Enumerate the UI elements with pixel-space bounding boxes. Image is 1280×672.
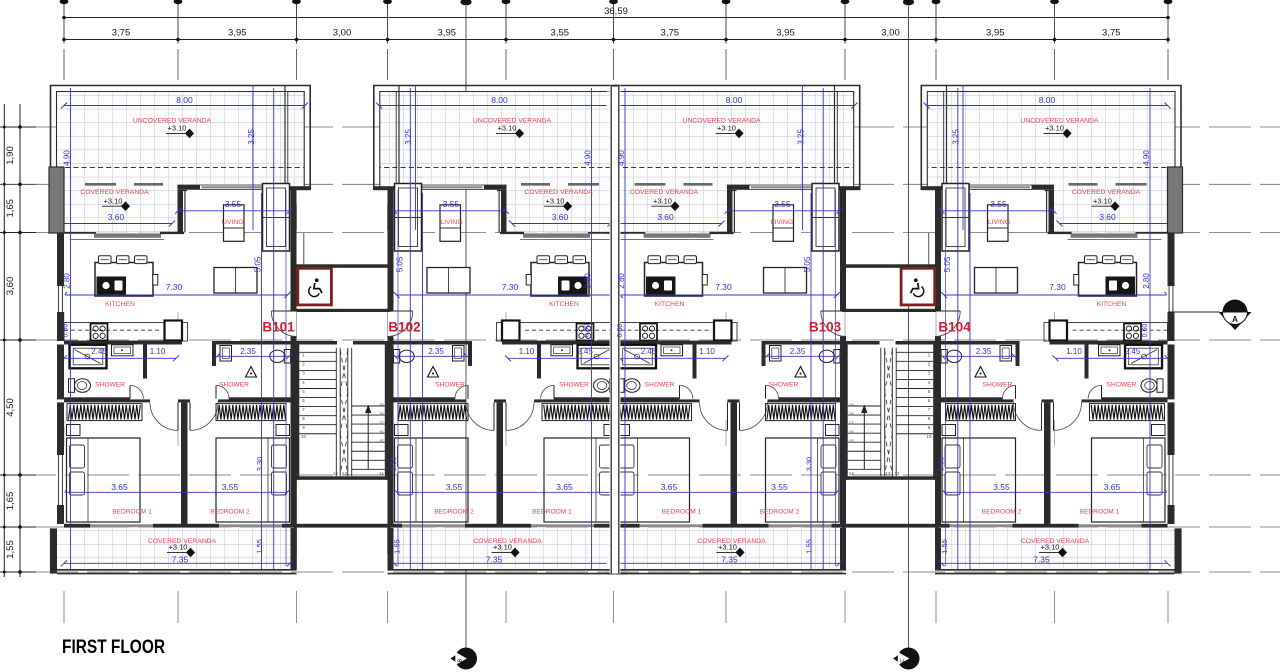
- svg-text:KITCHEN: KITCHEN: [655, 301, 685, 308]
- svg-text:SHOWER: SHOWER: [435, 382, 465, 389]
- svg-text:3.55: 3.55: [774, 199, 791, 209]
- svg-text:SHOWER: SHOWER: [983, 382, 1013, 389]
- svg-text:3.55: 3.55: [443, 199, 460, 209]
- svg-text:3.55: 3.55: [446, 482, 463, 492]
- svg-text:BEDROOM 2: BEDROOM 2: [434, 509, 474, 516]
- svg-text:19: 19: [379, 403, 384, 408]
- svg-text:SHOWER: SHOWER: [645, 382, 675, 389]
- svg-text:5.05: 5.05: [396, 256, 405, 272]
- svg-text:B101: B101: [262, 320, 295, 335]
- svg-text:BEDROOM 2: BEDROOM 2: [982, 509, 1022, 516]
- svg-text:BEDROOM 2: BEDROOM 2: [760, 509, 800, 516]
- svg-text:+3.10: +3.10: [168, 124, 187, 133]
- svg-text:17: 17: [379, 421, 384, 426]
- svg-text:5.05: 5.05: [943, 256, 952, 272]
- svg-text:1.55: 1.55: [804, 539, 813, 554]
- svg-text:1.10: 1.10: [699, 347, 715, 356]
- svg-text:A: A: [1232, 315, 1238, 324]
- svg-text:+3.10: +3.10: [1045, 124, 1064, 133]
- svg-text:COVERED VERANDA: COVERED VERANDA: [80, 189, 149, 196]
- svg-text:BEDROOM 1: BEDROOM 1: [1080, 509, 1120, 516]
- svg-text:3,75: 3,75: [112, 28, 131, 39]
- svg-text:0.60: 0.60: [583, 324, 590, 338]
- svg-text:SHOWER: SHOWER: [559, 382, 589, 389]
- svg-text:3,95: 3,95: [986, 28, 1005, 39]
- svg-text:12: 12: [895, 471, 900, 476]
- svg-text:3.60: 3.60: [552, 212, 569, 222]
- svg-text:2.35: 2.35: [240, 347, 256, 356]
- svg-text:+3.10: +3.10: [498, 124, 517, 133]
- svg-text:1.10: 1.10: [150, 347, 166, 356]
- svg-text:3.55: 3.55: [771, 482, 788, 492]
- svg-text:+3.10: +3.10: [104, 196, 123, 205]
- svg-text:1.55: 1.55: [940, 539, 949, 554]
- svg-text:3,00: 3,00: [333, 28, 352, 39]
- svg-text:0.60: 0.60: [617, 324, 624, 338]
- svg-text:BEDROOM 2: BEDROOM 2: [210, 509, 250, 516]
- svg-text:3.60: 3.60: [108, 212, 125, 222]
- svg-text:KITCHEN: KITCHEN: [1097, 301, 1127, 308]
- svg-text:3,95: 3,95: [776, 28, 795, 39]
- svg-text:1.55: 1.55: [255, 539, 264, 554]
- svg-text:11: 11: [295, 471, 300, 476]
- svg-text:3,00: 3,00: [881, 28, 900, 39]
- svg-text:2.45: 2.45: [91, 347, 107, 356]
- svg-text:2.80: 2.80: [1142, 273, 1151, 289]
- svg-text:36,59: 36,59: [604, 6, 628, 17]
- svg-text:+3.10: +3.10: [718, 543, 737, 552]
- svg-text:B103: B103: [809, 320, 842, 335]
- svg-text:2.35: 2.35: [976, 347, 992, 356]
- svg-text:4.90: 4.90: [1142, 150, 1151, 166]
- svg-text:2.45: 2.45: [1125, 347, 1141, 356]
- svg-text:SHOWER: SHOWER: [219, 382, 249, 389]
- svg-text:16: 16: [379, 430, 384, 435]
- svg-text:3.25: 3.25: [952, 129, 961, 145]
- svg-text:5.05: 5.05: [803, 256, 812, 272]
- svg-text:3.25: 3.25: [404, 129, 413, 145]
- svg-text:+3.10: +3.10: [493, 543, 512, 552]
- svg-text:B102: B102: [388, 320, 420, 335]
- svg-text:3,75: 3,75: [1102, 28, 1121, 39]
- svg-text:COVERED VERANDA: COVERED VERANDA: [630, 189, 699, 196]
- svg-text:4.90: 4.90: [584, 150, 593, 166]
- svg-text:3,95: 3,95: [438, 28, 457, 39]
- svg-text:2.80: 2.80: [584, 273, 593, 289]
- svg-text:3.65: 3.65: [111, 482, 128, 492]
- svg-text:3.55: 3.55: [225, 199, 242, 209]
- svg-text:3.25: 3.25: [247, 129, 256, 145]
- svg-text:2.35: 2.35: [428, 347, 444, 356]
- svg-text:13: 13: [886, 471, 891, 476]
- svg-text:1.10: 1.10: [519, 347, 535, 356]
- svg-text:2.80: 2.80: [617, 273, 626, 289]
- svg-text:3,95: 3,95: [228, 28, 247, 39]
- svg-text:7.30: 7.30: [502, 282, 519, 292]
- svg-text:3.30: 3.30: [804, 457, 813, 472]
- svg-text:1.10: 1.10: [1066, 347, 1082, 356]
- svg-text:7.30: 7.30: [715, 282, 732, 292]
- svg-text:10: 10: [301, 434, 306, 439]
- svg-text:SHOWER: SHOWER: [1107, 382, 1137, 389]
- svg-text:LIVING: LIVING: [221, 219, 243, 226]
- svg-text:10: 10: [927, 434, 932, 439]
- svg-text:+3.10: +3.10: [546, 196, 565, 205]
- svg-text:+3.10: +3.10: [1041, 543, 1060, 552]
- svg-text:+3.10: +3.10: [653, 196, 672, 205]
- svg-text:3.60: 3.60: [1099, 212, 1116, 222]
- svg-text:1,55: 1,55: [5, 540, 16, 559]
- svg-text:13: 13: [342, 471, 347, 476]
- svg-text:+3.10: +3.10: [1093, 196, 1112, 205]
- svg-text:4.90: 4.90: [63, 150, 72, 166]
- svg-text:1.55: 1.55: [393, 539, 402, 554]
- svg-text:BEDROOM 1: BEDROOM 1: [112, 509, 152, 516]
- svg-text:14: 14: [379, 471, 384, 476]
- svg-text:BEDROOM 1: BEDROOM 1: [532, 509, 572, 516]
- svg-text:4.90: 4.90: [617, 150, 626, 166]
- svg-text:2.35: 2.35: [790, 347, 806, 356]
- svg-text:8.00: 8.00: [726, 95, 743, 105]
- svg-text:3.65: 3.65: [1104, 482, 1121, 492]
- svg-text:B104: B104: [938, 320, 971, 335]
- svg-text:BEDROOM 1: BEDROOM 1: [662, 509, 702, 516]
- svg-text:COVERED VERANDA: COVERED VERANDA: [1072, 189, 1141, 196]
- svg-text:1,90: 1,90: [5, 146, 16, 165]
- svg-text:0.60: 0.60: [62, 324, 69, 338]
- svg-text:8.00: 8.00: [176, 95, 193, 105]
- svg-text:3.30: 3.30: [937, 457, 946, 472]
- svg-text:B: B: [458, 658, 464, 662]
- svg-text:8.00: 8.00: [491, 95, 508, 105]
- svg-text:7.35: 7.35: [1033, 555, 1050, 565]
- svg-text:7.30: 7.30: [166, 282, 183, 292]
- svg-text:KITCHEN: KITCHEN: [105, 301, 135, 308]
- svg-text:1,65: 1,65: [5, 199, 16, 218]
- svg-text:KITCHEN: KITCHEN: [549, 301, 579, 308]
- svg-text:14: 14: [849, 471, 854, 476]
- svg-text:18: 18: [849, 412, 854, 417]
- svg-text:3,75: 3,75: [661, 28, 680, 39]
- svg-text:12: 12: [333, 471, 338, 476]
- svg-text:3.60: 3.60: [657, 212, 674, 222]
- svg-text:C: C: [900, 658, 906, 662]
- svg-text:11: 11: [933, 471, 938, 476]
- svg-text:SHOWER: SHOWER: [769, 382, 799, 389]
- svg-text:2.45: 2.45: [641, 347, 657, 356]
- svg-text:+3.10: +3.10: [169, 543, 188, 552]
- svg-text:17: 17: [849, 421, 854, 426]
- svg-text:2.80: 2.80: [63, 273, 72, 289]
- svg-text:15: 15: [849, 439, 854, 444]
- svg-text:3.25: 3.25: [796, 129, 805, 145]
- svg-text:8.00: 8.00: [1039, 95, 1056, 105]
- svg-text:7.30: 7.30: [1049, 282, 1066, 292]
- svg-text:1,65: 1,65: [5, 492, 16, 511]
- svg-text:LIVING: LIVING: [771, 219, 793, 226]
- svg-text:16: 16: [849, 430, 854, 435]
- svg-text:3.55: 3.55: [222, 482, 239, 492]
- svg-text:COVERED VERANDA: COVERED VERANDA: [524, 189, 593, 196]
- svg-text:FIRST FLOOR: FIRST FLOOR: [62, 637, 165, 658]
- svg-text:5.05: 5.05: [254, 256, 263, 272]
- svg-text:7.35: 7.35: [486, 555, 503, 565]
- svg-text:19: 19: [849, 403, 854, 408]
- svg-text:SHOWER: SHOWER: [95, 382, 125, 389]
- svg-text:LIVING: LIVING: [988, 219, 1010, 226]
- svg-text:4,50: 4,50: [5, 398, 16, 417]
- svg-text:2.45: 2.45: [577, 347, 593, 356]
- svg-text:3,55: 3,55: [551, 28, 570, 39]
- svg-text:18: 18: [379, 412, 384, 417]
- svg-text:15: 15: [379, 439, 384, 444]
- svg-text:+3.10: +3.10: [717, 124, 736, 133]
- svg-text:3.65: 3.65: [556, 482, 573, 492]
- svg-text:7.35: 7.35: [172, 555, 189, 565]
- svg-text:0.60: 0.60: [1142, 324, 1149, 338]
- svg-text:3.65: 3.65: [661, 482, 678, 492]
- svg-text:3.55: 3.55: [993, 482, 1010, 492]
- svg-text:3.55: 3.55: [990, 199, 1007, 209]
- svg-text:3.30: 3.30: [255, 457, 264, 472]
- svg-text:7.35: 7.35: [721, 555, 738, 565]
- svg-text:LIVING: LIVING: [440, 219, 462, 226]
- svg-text:3.30: 3.30: [389, 457, 398, 472]
- svg-text:3,60: 3,60: [5, 277, 16, 296]
